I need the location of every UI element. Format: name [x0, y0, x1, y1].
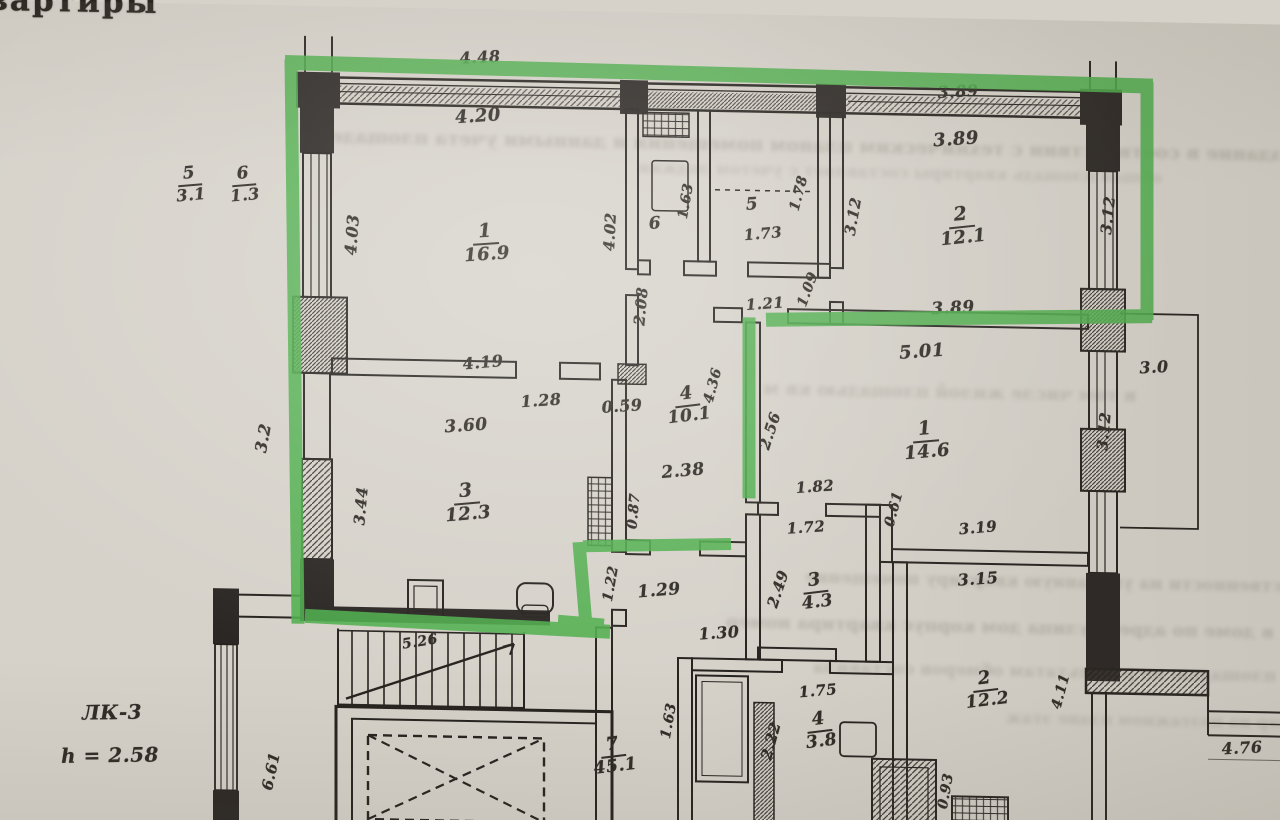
- highlighter-annotation: [0, 0, 1280, 820]
- plan-scene: здание в соответствии с техническим план…: [0, 0, 1280, 820]
- scanned-floor-plan: здание в соответствии с техническим план…: [0, 0, 1280, 820]
- green-boundary: [285, 59, 1153, 642]
